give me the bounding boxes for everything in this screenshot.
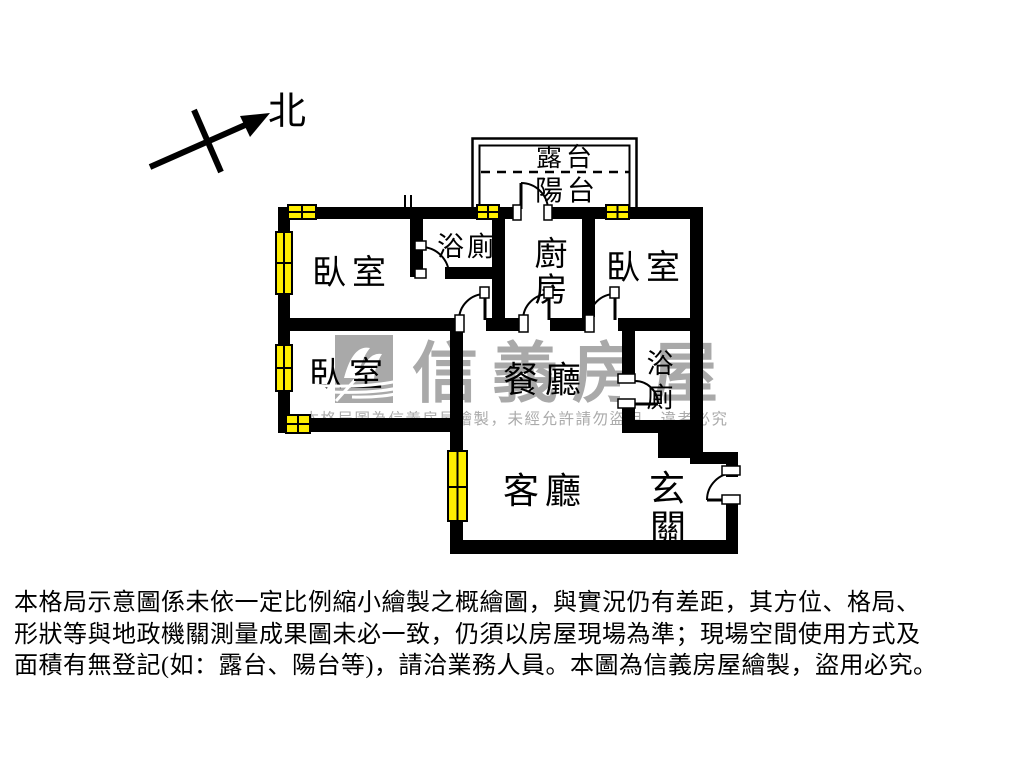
- window-bedroomw-south: [286, 415, 310, 433]
- room-label-terrace: 露台: [536, 143, 596, 172]
- wall-kitchen-west: [492, 219, 505, 331]
- disclaimer-line-1: 本格局示意圖係未依一定比例縮小繪製之概繪圖，與實況仍有差距，其方位、格局、: [14, 588, 1018, 620]
- disclaimer-line-3: 面積有無登記(如：露台、陽台等)，請洽業務人員。本圖為信義房屋繪製，盜用必究。: [14, 651, 1018, 683]
- room-label-bedroom-ne: 臥室: [606, 249, 686, 287]
- floor-plan-page: 信義房屋 本格局圖為信義房屋繪製，未經允許請勿盜用，違者必究 露台 陽台 臥室 …: [0, 0, 1024, 768]
- disclaimer-text: 本格局示意圖係未依一定比例縮小繪製之概繪圖，與實況仍有差距，其方位、格局、 形狀…: [14, 588, 1018, 683]
- window-living-west: [448, 451, 467, 521]
- window-bedroomnw-top: [288, 205, 316, 219]
- wall-kitchen-east: [582, 219, 595, 331]
- room-label-bedroom-nw: 臥室: [312, 254, 392, 292]
- window-bedroomw-west: [276, 345, 292, 391]
- room-label-bathroom2: 浴: [647, 349, 674, 379]
- room-label-foyer: 玄: [649, 469, 685, 509]
- structural-pillar: [658, 433, 692, 458]
- window-bedroomnw-west: [276, 232, 292, 294]
- wall-south: [450, 540, 738, 554]
- room-label-balcony: 陽台: [535, 175, 599, 207]
- north-label: 北: [268, 91, 306, 133]
- north-arrow-head: [240, 113, 270, 137]
- room-label-bedroom-w: 臥室: [309, 356, 389, 394]
- wall-mid-horizontal: [278, 318, 703, 331]
- window-bath-main-top: [477, 205, 499, 219]
- wall-bath2-south: [622, 420, 692, 433]
- north-compass: 北: [150, 91, 306, 172]
- room-label-bathroom-main: 浴廁: [437, 232, 497, 262]
- disclaimer-line-2: 形狀等與地政機關測量成果圖未必一致，仍須以房屋現場為準；現場空間使用方式及: [14, 620, 1018, 652]
- room-label-dining: 餐廳: [503, 360, 587, 400]
- room-label-living: 客廳: [503, 471, 587, 511]
- room-label-kitchen: 廚: [535, 236, 568, 273]
- window-bedroomne-top: [606, 205, 629, 219]
- north-arrow-cross: [194, 110, 221, 172]
